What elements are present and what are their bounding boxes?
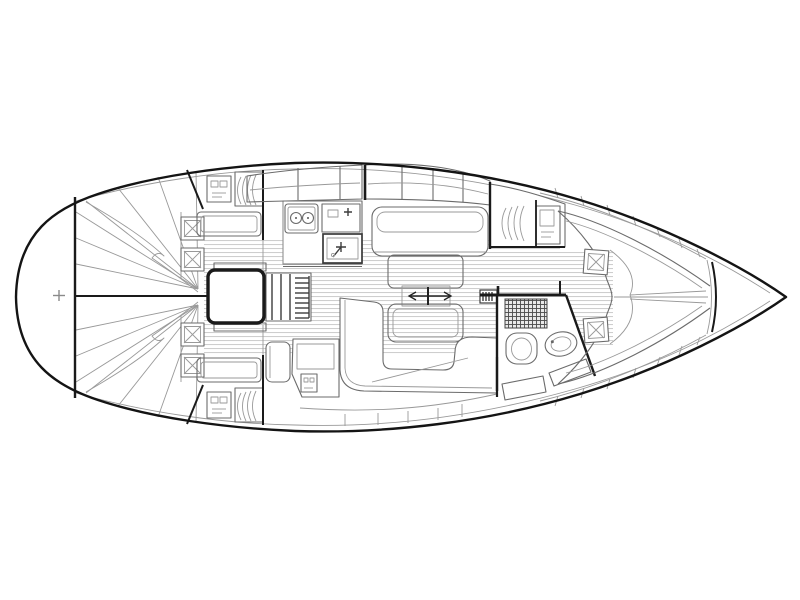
hanging-locker [235, 388, 263, 422]
aft-berth-fan [76, 171, 198, 292]
pillow [181, 248, 204, 271]
yacht-floor-plan-canvas [0, 0, 800, 600]
hanger-symbol [238, 391, 257, 421]
companionway [208, 263, 311, 331]
pillow [583, 317, 609, 343]
aft-berth-shelf [197, 358, 261, 382]
pillow [181, 323, 204, 346]
nav-station [266, 339, 339, 397]
stern-fitting-mark [53, 290, 65, 301]
pillow [583, 249, 609, 275]
wardrobe-cabinet [207, 176, 231, 202]
sink-with-faucet [323, 234, 362, 263]
salon-settee-starboard [372, 207, 488, 256]
galley [283, 201, 362, 267]
yacht-floor-plan [0, 0, 800, 600]
companionway-engine-box [208, 270, 264, 323]
aft-berth-fan [76, 302, 198, 423]
anchor-locker-bulkhead [712, 262, 716, 332]
aft-berth-shelf [197, 212, 261, 236]
wardrobe-cabinet [207, 392, 231, 418]
shower-grate [505, 299, 547, 328]
nav-station-desk [292, 339, 339, 397]
companionway-steps [266, 273, 311, 321]
